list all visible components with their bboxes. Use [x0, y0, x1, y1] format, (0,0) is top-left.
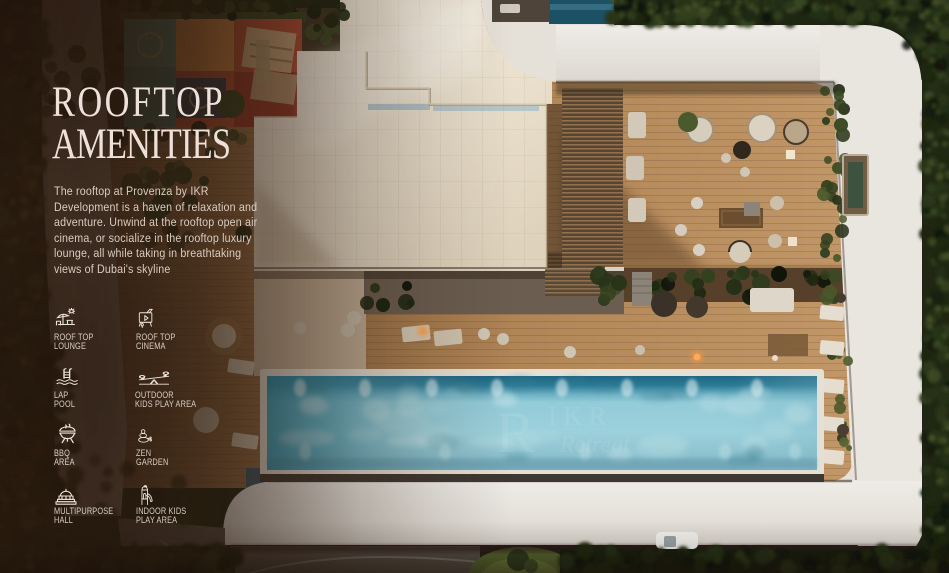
- svg-text:IKR: IKR: [548, 401, 613, 431]
- svg-text:Retreat: Retreat: [559, 432, 631, 458]
- svg-text:R: R: [496, 400, 535, 465]
